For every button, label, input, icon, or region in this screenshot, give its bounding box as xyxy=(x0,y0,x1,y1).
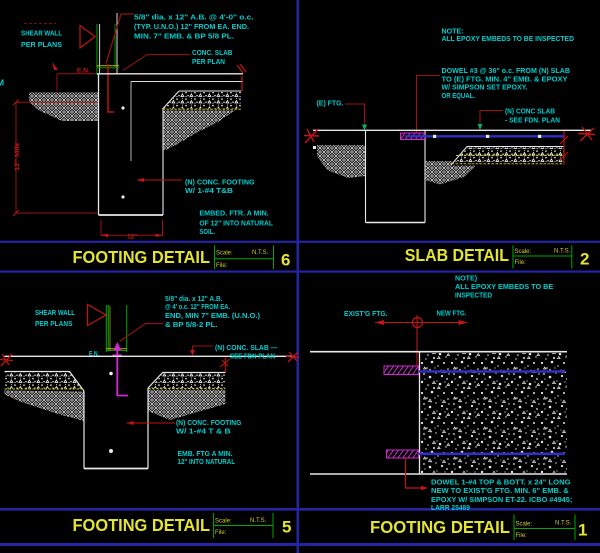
svg-text:5/8" dia. x 12" A.B. @ 4'-0" o: 5/8" dia. x 12" A.B. @ 4'-0" o.c. xyxy=(134,14,254,22)
svg-text:DOWEL #3 @ 36" o.c. FROM (N) S: DOWEL #3 @ 36" o.c. FROM (N) SLAB xyxy=(442,67,571,75)
svg-text:FOOTING DETAIL: FOOTING DETAIL xyxy=(370,517,510,537)
svg-text:SLAB DETAIL: SLAB DETAIL xyxy=(405,245,510,265)
svg-text:12" MIN: 12" MIN xyxy=(14,143,21,171)
svg-text:& BP 5/8-2 PL.: & BP 5/8-2 PL. xyxy=(165,321,218,329)
svg-text:File:: File: xyxy=(216,263,228,269)
svg-text:(N) CONC. FOOTING: (N) CONC. FOOTING xyxy=(185,179,255,187)
svg-text:File:: File: xyxy=(516,533,528,539)
svg-text:FOOTING DETAIL: FOOTING DETAIL xyxy=(73,247,211,267)
svg-text:MIN. 7" EMB. & BP 5/8 PL.: MIN. 7" EMB. & BP 5/8 PL. xyxy=(134,32,234,40)
svg-text:12": 12" xyxy=(127,234,137,241)
svg-text:- SEE FDN. PLAN: - SEE FDN. PLAN xyxy=(505,116,560,124)
svg-text:NEW FTG.: NEW FTG. xyxy=(437,309,467,317)
svg-text:EMB. FTG A MIN.: EMB. FTG A MIN. xyxy=(178,450,233,458)
svg-text:M: M xyxy=(0,78,4,88)
svg-text:FOOTING DETAIL: FOOTING DETAIL xyxy=(73,515,211,535)
svg-text:5: 5 xyxy=(282,518,291,537)
svg-text:Scale:: Scale: xyxy=(516,522,533,528)
svg-text:ALL EPOXY EMBEDS TO BE: ALL EPOXY EMBEDS TO BE xyxy=(455,283,554,291)
svg-text:DOWEL 1-#4 TOP & BOTT. x 24" L: DOWEL 1-#4 TOP & BOTT. x 24" LONG xyxy=(431,479,571,487)
svg-text:W/ 1-#4 T & B: W/ 1-#4 T & B xyxy=(176,427,231,435)
svg-text:(N) CONC. FOOTING: (N) CONC. FOOTING xyxy=(176,419,242,427)
svg-text:OR EQUAL.: OR EQUAL. xyxy=(442,92,476,100)
svg-text:2: 2 xyxy=(580,250,589,269)
svg-text:EMBED. FTR. A MIN.: EMBED. FTR. A MIN. xyxy=(199,210,268,218)
svg-text:Scale:: Scale: xyxy=(215,519,232,525)
svg-text:12" INTO NATURAL: 12" INTO NATURAL xyxy=(178,458,236,466)
svg-text:W/ 1-#4 T&B: W/ 1-#4 T&B xyxy=(185,187,233,195)
svg-text:SHEAR WALL: SHEAR WALL xyxy=(21,30,63,38)
svg-text:SEE FDN PLAN: SEE FDN PLAN xyxy=(230,352,275,360)
svg-text:@ 4' o.c. 12" FROM EA.: @ 4' o.c. 12" FROM EA. xyxy=(165,303,230,311)
svg-text:PER PLAN: PER PLAN xyxy=(192,58,225,66)
svg-text:1: 1 xyxy=(578,521,587,540)
svg-text:Scale:: Scale: xyxy=(515,249,532,255)
svg-text:N.T.S.: N.T.S. xyxy=(250,518,267,524)
svg-text:TO (E) FTG. MIN. 4" EMB. & EP: TO (E) FTG. MIN. 4" EMB. & EPOXY xyxy=(442,75,568,83)
svg-text:6: 6 xyxy=(281,251,290,270)
svg-text:SHEAR WALL: SHEAR WALL xyxy=(35,309,76,317)
svg-text:N.T.S.: N.T.S. xyxy=(252,250,269,256)
svg-text:(N) CONC. SLAB —: (N) CONC. SLAB — xyxy=(215,344,278,352)
svg-text:PER PLANS: PER PLANS xyxy=(35,320,73,328)
svg-text:NOTE): NOTE) xyxy=(455,274,478,282)
svg-text:PER PLANS: PER PLANS xyxy=(21,41,62,49)
svg-text:EXIST'G FTG.: EXIST'G FTG. xyxy=(344,310,388,318)
svg-text:OF 12" INTO NATURAL: OF 12" INTO NATURAL xyxy=(199,220,273,228)
svg-text:END, MIN 7" EMB. (U.N.O.): END, MIN 7" EMB. (U.N.O.) xyxy=(165,312,261,320)
svg-text:ALL EPOXY EMBEDS TO BE INSPECT: ALL EPOXY EMBEDS TO BE INSPECTED xyxy=(442,35,575,43)
svg-text:EPOXY W/ SIMPSON ET-22. ICBO: EPOXY W/ SIMPSON ET-22. ICBO #4945; xyxy=(431,496,572,504)
svg-text:(TYP. U.N.O.) 12" FROM EA. END: (TYP. U.N.O.) 12" FROM EA. END. xyxy=(134,23,249,31)
svg-text:INSPECTED: INSPECTED xyxy=(455,292,492,300)
svg-text:W/ SIMPSON SET EPOXY.: W/ SIMPSON SET EPOXY. xyxy=(442,84,528,92)
svg-text:File:: File: xyxy=(215,530,227,536)
svg-text:LARR 25489: LARR 25489 xyxy=(431,504,470,512)
svg-text:(N) CONC SLAB: (N) CONC SLAB xyxy=(505,108,555,116)
svg-text:CONC. SLAB: CONC. SLAB xyxy=(192,49,233,57)
svg-text:5/8" dia. x 12" A.B.: 5/8" dia. x 12" A.B. xyxy=(165,295,223,303)
svg-text:NEW TO EXIST'G FTG. MIN. 6" E: NEW TO EXIST'G FTG. MIN. 6" EMB. & xyxy=(431,487,569,495)
svg-text:File:: File: xyxy=(515,260,527,266)
svg-text:(E) FTG.: (E) FTG. xyxy=(317,99,344,107)
svg-text:Scale:: Scale: xyxy=(216,251,233,257)
svg-text:N.T.S.: N.T.S. xyxy=(555,521,572,527)
svg-text:SOIL.: SOIL. xyxy=(199,228,215,236)
svg-text:N.T.S.: N.T.S. xyxy=(554,249,571,255)
